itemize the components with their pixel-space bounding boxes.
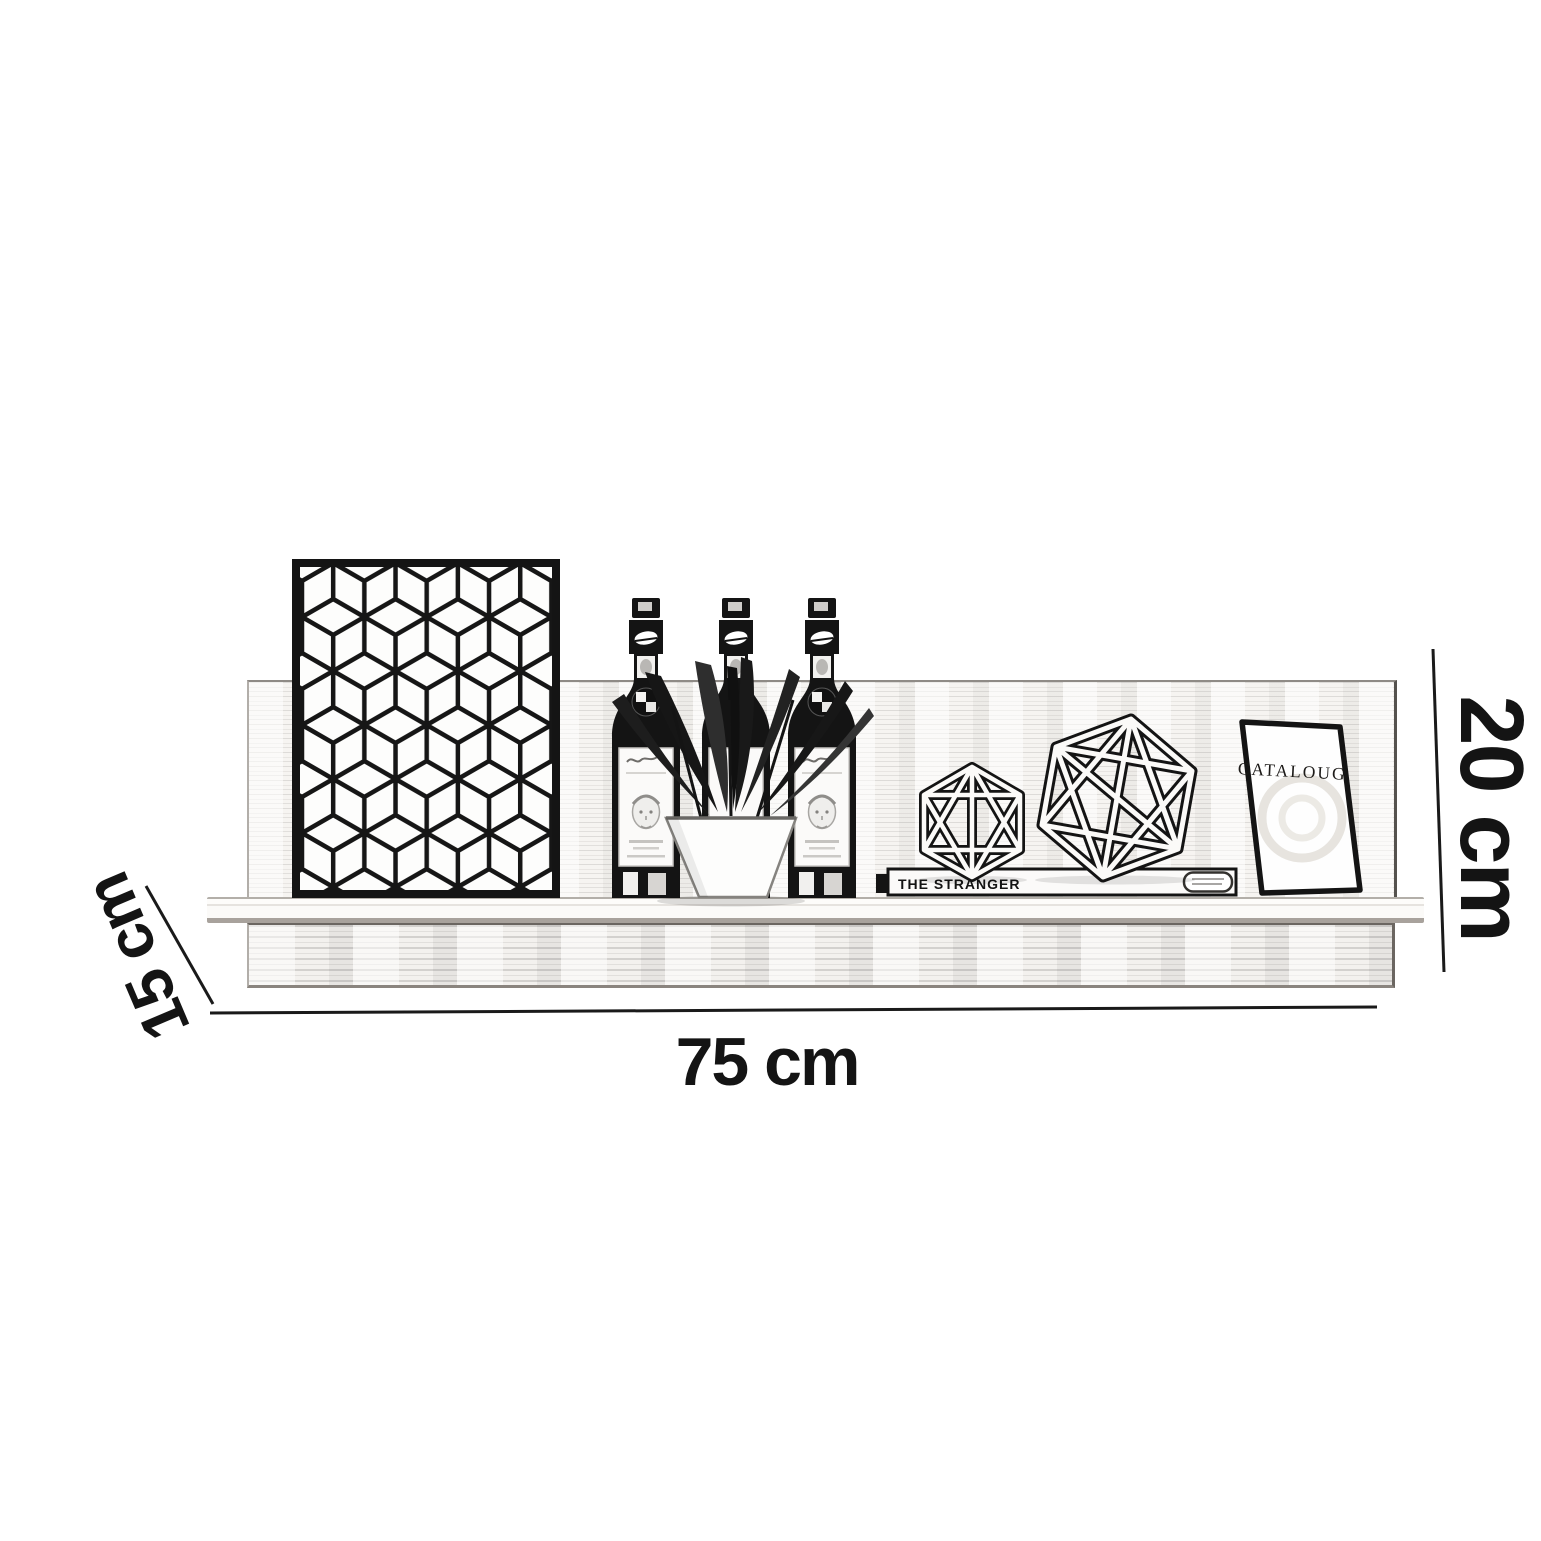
wireframe-polyhedron-large [1035,719,1195,885]
width-dimension-line [210,1007,1377,1013]
wireframe-polyhedron-small [917,767,1027,884]
catalog-book: CATALOUG [1237,722,1360,893]
sketch-canvas: THE STRANGER CATALOUG [0,0,1541,1541]
width-dimension-label: 75 cm [676,1028,859,1096]
height-dimension-label: 20 cm [1446,695,1536,940]
plant-pot [666,818,796,897]
book-badge [1184,873,1232,892]
cube-pattern-art-panel [296,563,556,894]
bottle [788,598,856,898]
bottle [612,598,680,898]
shelf-items-layer: THE STRANGER CATALOUG [0,0,1541,1541]
